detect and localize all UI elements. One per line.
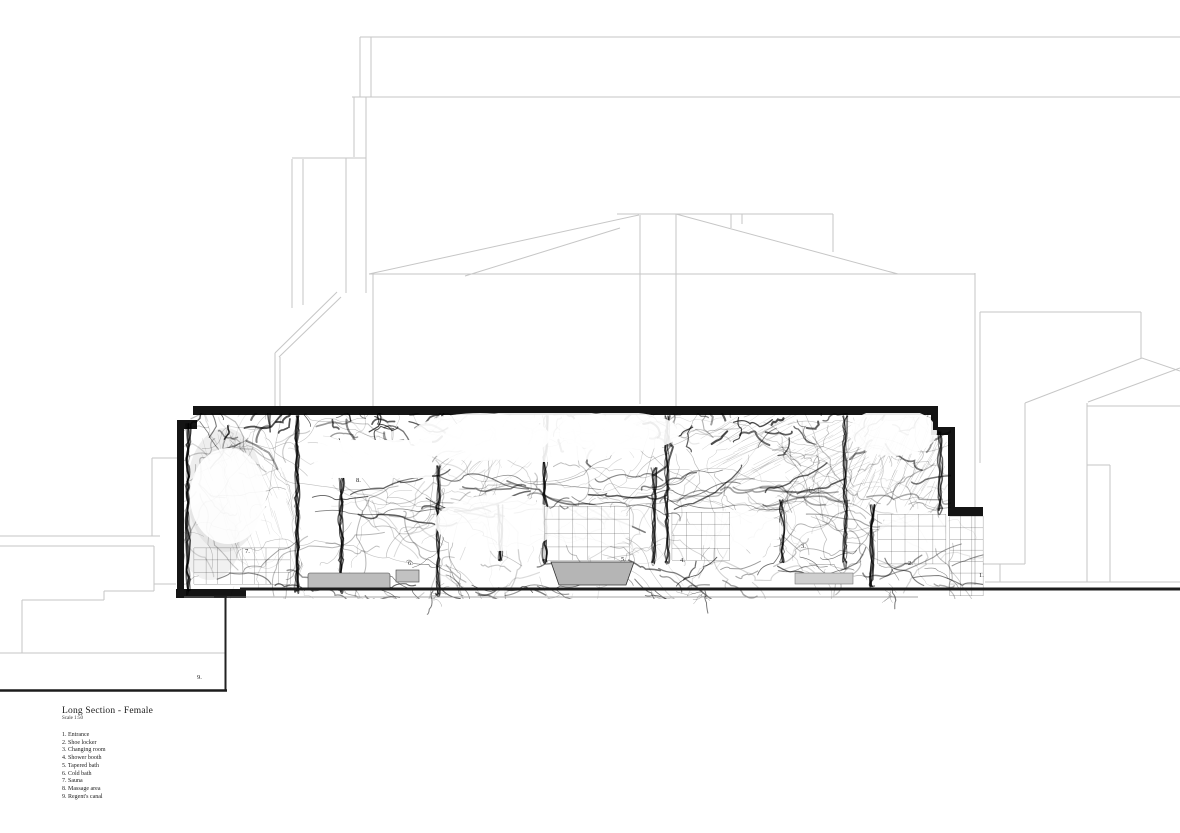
legend-item: 7. Sauna bbox=[62, 778, 153, 786]
bench bbox=[308, 573, 390, 590]
legend-item: 2. Shoe locker bbox=[62, 740, 153, 748]
room-number-label: 6. bbox=[408, 560, 413, 567]
legend-item: 9. Regent's canal bbox=[62, 794, 153, 802]
legend: Long Section - Female Scale 1:50 1. Entr… bbox=[62, 706, 153, 801]
legend-item: 5. Tapered bath bbox=[62, 763, 153, 771]
room-number-label: 9. bbox=[197, 674, 202, 681]
room-number-label: 7. bbox=[245, 548, 250, 555]
drawing-title: Long Section - Female bbox=[62, 706, 153, 716]
room-number-label: 2. bbox=[908, 560, 913, 567]
room-number-label: 3. bbox=[801, 543, 806, 550]
cold-bath-tub bbox=[396, 570, 419, 582]
drawing-scale: Scale 1:50 bbox=[62, 716, 153, 722]
legend-item: 1. Entrance bbox=[62, 732, 153, 740]
legend-item: 6. Cold bath bbox=[62, 771, 153, 779]
tapered-bath-tub bbox=[551, 562, 634, 585]
room-number-label: 1. bbox=[979, 572, 984, 579]
legend-item: 8. Massage area bbox=[62, 786, 153, 794]
ground-and-canal bbox=[0, 589, 1180, 691]
section-drawing: 1.2.3.4.5.6.7.8.9. bbox=[0, 0, 1180, 833]
legend-list: 1. Entrance2. Shoe locker3. Changing roo… bbox=[62, 732, 153, 801]
drawing-canvas: 1.2.3.4.5.6.7.8.9. Long Section - Female… bbox=[0, 0, 1180, 833]
bench bbox=[795, 573, 853, 584]
room-number-label: 8. bbox=[356, 477, 361, 484]
baths-and-benches bbox=[308, 562, 853, 590]
legend-item: 3. Changing room bbox=[62, 747, 153, 755]
room-number-label: 4. bbox=[680, 557, 685, 564]
legend-item: 4. Shower booth bbox=[62, 755, 153, 763]
room-number-label: 5. bbox=[621, 556, 626, 563]
